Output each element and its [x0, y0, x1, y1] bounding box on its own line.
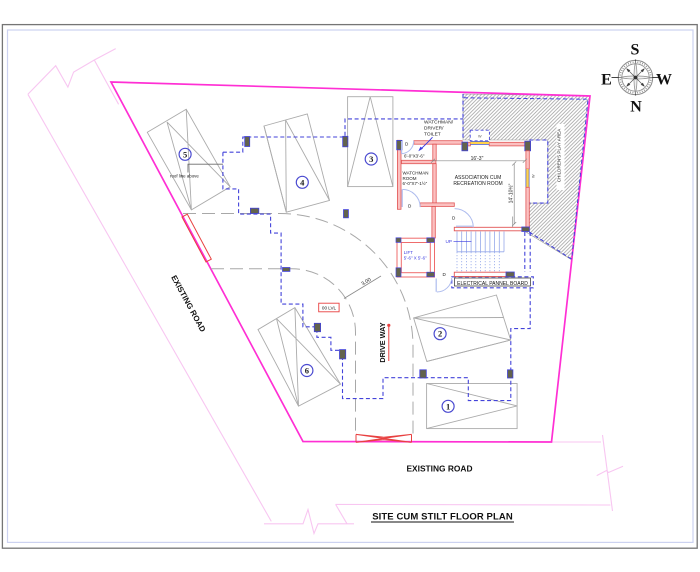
svg-text:WATCHMAN/: WATCHMAN/: [424, 120, 454, 126]
svg-text:D: D: [408, 204, 412, 209]
svg-text:RECREATION ROOM: RECREATION ROOM: [453, 181, 502, 187]
svg-text:3.00: 3.00: [361, 277, 373, 287]
svg-text:W: W: [478, 135, 482, 139]
svg-text:6: 6: [305, 366, 309, 376]
svg-text:EXISTING ROAD: EXISTING ROAD: [406, 463, 472, 473]
svg-text:DRIVER/: DRIVER/: [424, 126, 444, 132]
svg-text:6'-0"X3'-6": 6'-0"X3'-6": [404, 154, 425, 159]
svg-text:D: D: [443, 272, 447, 277]
svg-text:DRIVE WAY: DRIVE WAY: [378, 322, 387, 362]
svg-text:SITE CUM STILT FLOOR PLAN: SITE CUM STILT FLOOR PLAN: [372, 511, 513, 522]
svg-text:E: E: [601, 72, 612, 89]
svg-text:W: W: [532, 174, 536, 178]
svg-text:ROOM: ROOM: [403, 176, 417, 181]
svg-text:4: 4: [300, 177, 305, 187]
svg-text:TOILET: TOILET: [424, 131, 441, 137]
svg-text:1: 1: [446, 401, 450, 411]
svg-text:CHILDREN'S PLAY AREA: CHILDREN'S PLAY AREA: [557, 128, 562, 182]
svg-text:00 LVL: 00 LVL: [322, 306, 337, 311]
svg-text:EXISTING ROAD: EXISTING ROAD: [169, 274, 207, 334]
svg-text:6'-0"X7'-1½": 6'-0"X7'-1½": [403, 180, 428, 186]
svg-text:2: 2: [438, 329, 442, 339]
svg-text:WATCHMAN: WATCHMAN: [403, 171, 429, 176]
svg-text:UP: UP: [446, 239, 452, 244]
svg-text:D: D: [452, 215, 456, 220]
svg-text:N: N: [630, 99, 642, 116]
svg-text:ELECTRICAL PANNEL BOARD: ELECTRICAL PANNEL BOARD: [457, 281, 528, 287]
svg-text:W: W: [656, 72, 672, 89]
svg-text:S: S: [631, 42, 640, 59]
svg-text:5'-6" X 5'-6": 5'-6" X 5'-6": [404, 255, 427, 260]
svg-text:16'-3": 16'-3": [471, 156, 484, 162]
svg-text:14'-10½": 14'-10½": [508, 183, 515, 203]
svg-text:roof line above: roof line above: [170, 174, 199, 179]
svg-text:D: D: [405, 141, 409, 146]
svg-text:3: 3: [369, 154, 373, 164]
svg-text:5: 5: [183, 149, 187, 159]
